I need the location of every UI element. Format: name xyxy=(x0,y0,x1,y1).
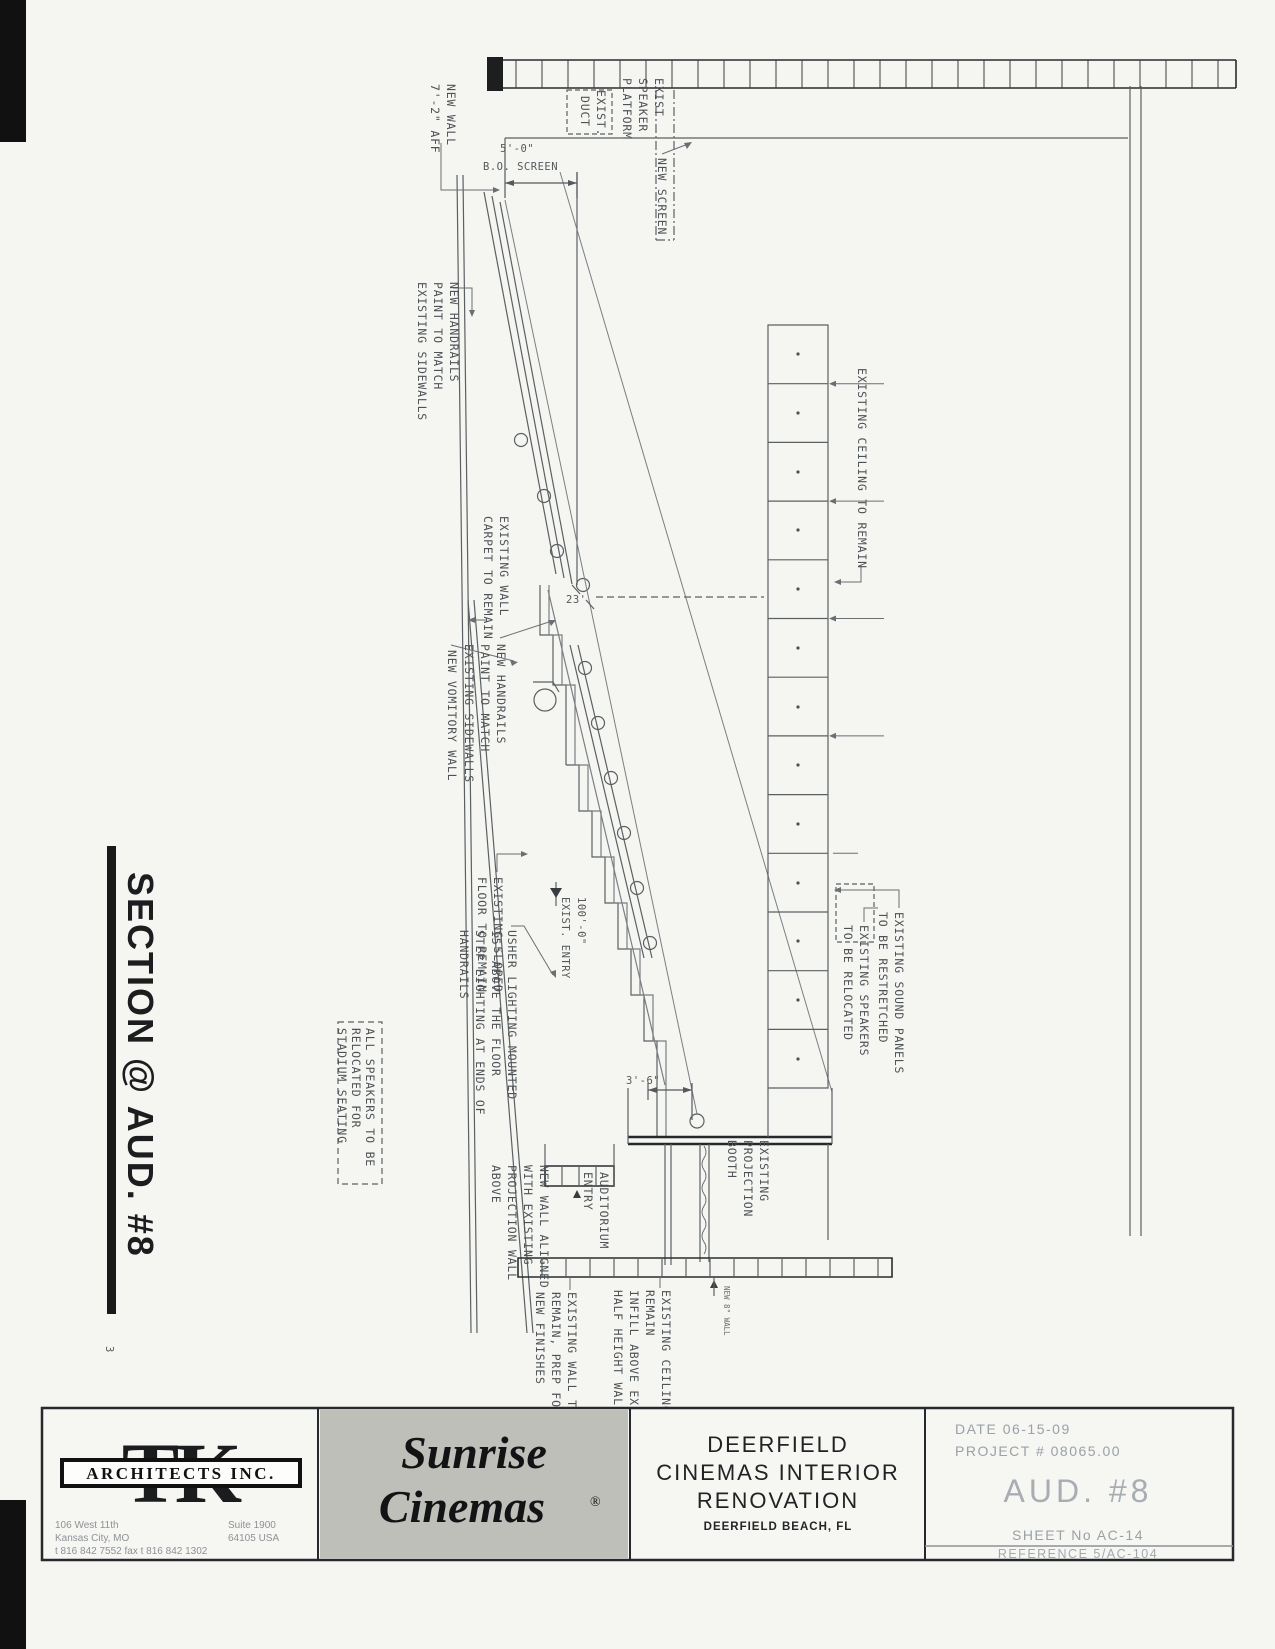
title-underline xyxy=(107,846,116,1314)
architect-addr2: Suite 1900 xyxy=(228,1520,276,1531)
label-sound-panels-2: TO BE RESTRETCHED xyxy=(876,912,890,1043)
project-line1: DEERFIELD xyxy=(707,1432,848,1457)
project-line2: CINEMAS INTERIOR xyxy=(656,1460,899,1485)
elev-entry-name: EXIST. ENTRY xyxy=(559,897,571,979)
label-proj-booth-3: BOOTH xyxy=(725,1140,739,1179)
bo-screen-dimension xyxy=(505,150,577,198)
scanned-drawing-sheet: SECTION @ AUD. #8 3 xyxy=(0,0,1275,1649)
brand-line1: Sunrise xyxy=(401,1427,547,1478)
label-speakers-reloc-1: EXISTING SPEAKERS xyxy=(857,925,871,1056)
label-speaker-platform-3: PLATFORM xyxy=(620,78,634,140)
label-tiny-wall: NEW 8" WALL xyxy=(722,1286,731,1336)
label-wall-remain-2: REMAIN, PREP FOR xyxy=(549,1292,563,1416)
label-proj-booth-1: EXISTING xyxy=(757,1140,771,1202)
scan-artifact xyxy=(0,0,26,1649)
rear-wall-section xyxy=(518,1258,892,1277)
label-usher-1: USHER LIGHTING MOUNTED xyxy=(505,930,519,1100)
screen-wall-section xyxy=(487,57,1236,91)
meta-project-no: PROJECT # 08065.00 xyxy=(955,1443,1121,1459)
architects-banner-text: ARCHITECTS INC. xyxy=(86,1464,276,1483)
dim-port: 3'-6" xyxy=(626,1075,660,1087)
panel-buttons xyxy=(796,352,799,1060)
label-ceiling-remain: EXISTING CEILING TO REMAIN xyxy=(855,368,869,569)
label-usher-4: HANDRAILS xyxy=(457,930,471,1000)
architect-addr4: 64105 USA xyxy=(228,1533,279,1544)
port-dimension xyxy=(648,1083,692,1120)
architect-addr5: t 816 842 7552 fax t 816 842 1302 xyxy=(55,1546,208,1557)
label-new-screen: NEW SCREEN xyxy=(655,158,669,235)
brand-box: Sunrise Cinemas ® xyxy=(320,1410,628,1558)
label-new-wall-aligned-2: WITH EXISTING xyxy=(521,1165,535,1265)
label-wall-remain-3: NEW FINISHES xyxy=(533,1292,547,1385)
brand-line2: Cinemas xyxy=(379,1481,545,1532)
rear-datum-marker xyxy=(710,1277,718,1296)
project-location: DEERFIELD BEACH, FL xyxy=(704,1521,853,1533)
label-handrails2-2: PAINT TO MATCH xyxy=(478,644,492,752)
label-proj-booth-2: PROJECTION xyxy=(741,1140,755,1217)
label-usher-2: 15" ABOVE THE FLOOR xyxy=(489,930,503,1077)
page-title: SECTION @ AUD. #8 xyxy=(120,872,161,1258)
architect-addr3: Kansas City, MO xyxy=(55,1533,129,1544)
label-handrails1-2: PAINT TO MATCH xyxy=(431,282,445,390)
meta-aud-number: AUD. #8 xyxy=(1004,1473,1153,1509)
label-new-wall-aligned-1: NEW WALL ALIGNED xyxy=(537,1165,551,1289)
wheelchair-symbol xyxy=(533,682,559,711)
label-exist-duct-2: DUCT xyxy=(578,96,592,127)
roof-line xyxy=(1130,86,1141,1236)
architect-addr1: 106 West 11th xyxy=(55,1520,119,1531)
label-speakers-reloc-2: TO BE RELOCATED xyxy=(841,925,855,1041)
label-handrails1-3: EXISTING SIDEWALLS xyxy=(415,282,429,421)
annotations: NEW WALL 7'-2" AFF EXIST. DUCT EXIST SPE… xyxy=(335,78,906,1452)
section-title-block: SECTION @ AUD. #8 3 xyxy=(103,846,161,1353)
dim-bo-screen-label: B.O. SCREEN xyxy=(483,161,558,173)
meta-date: DATE 06-15-09 xyxy=(955,1421,1071,1437)
meta-reference: REFERENCE 5/AC-104 xyxy=(998,1547,1158,1561)
dim-throw: 23' xyxy=(566,594,586,606)
meta-sheet-no: SHEET No AC-14 xyxy=(1012,1527,1144,1543)
note-speakers-3: STADIUM SEATING xyxy=(335,1028,349,1144)
detail-number: 3 xyxy=(103,1346,115,1353)
label-handrails1-1: NEW HANDRAILS xyxy=(447,282,461,382)
title-block: TK ARCHITECTS INC. 106 West 11th Suite 1… xyxy=(42,1408,1233,1561)
label-ceiling-infill-2: REMAIN xyxy=(643,1290,657,1336)
note-speakers-2: RELOCATED FOR xyxy=(349,1028,363,1128)
label-exist-duct-1: EXIST. xyxy=(594,90,608,136)
label-sound-panels-1: EXISTING SOUND PANELS xyxy=(892,912,906,1074)
label-handrails2-1: NEW HANDRAILS xyxy=(494,644,508,744)
project-line3: RENOVATION xyxy=(697,1488,859,1513)
brand-reg-mark: ® xyxy=(590,1495,601,1510)
label-aud-entry-2: ENTRY xyxy=(581,1172,595,1211)
label-new-wall-aff-1: NEW WALL xyxy=(444,84,458,146)
label-speaker-platform-2: SPEAKER xyxy=(636,78,650,132)
section-drawing-canvas: SECTION @ AUD. #8 3 xyxy=(0,0,1275,1649)
label-wall-carpet-2: CARPET TO REMAIN xyxy=(481,516,495,640)
label-new-wall-aff-2: 7'-2" AFF xyxy=(428,84,442,154)
label-new-wall-aligned-4: ABOVE xyxy=(489,1165,503,1204)
label-wall-remain-1: EXISTING WALL TO xyxy=(565,1292,579,1416)
label-speaker-platform-1: EXIST xyxy=(652,78,666,117)
elev-entry-value: 100'-0" xyxy=(575,897,587,945)
label-new-wall-aligned-3: PROJECTION WALL xyxy=(505,1165,519,1281)
label-ceiling-infill-4: HALF HEIGHT WALL xyxy=(611,1290,625,1414)
label-aud-entry-1: AUDITORIUM xyxy=(597,1172,611,1249)
label-vomitory: NEW VOMITORY WALL xyxy=(445,650,459,781)
label-usher-3: STEP LIGHTING AT ENDS OF xyxy=(473,930,487,1115)
note-speakers-1: ALL SPEAKERS TO BE xyxy=(363,1028,377,1167)
label-wall-carpet-1: EXISTING WALL xyxy=(497,516,511,616)
dim-bo-screen-value: 5'-0" xyxy=(500,143,534,155)
label-handrails2-3: EXISTING SIDEWALLS xyxy=(462,644,476,783)
